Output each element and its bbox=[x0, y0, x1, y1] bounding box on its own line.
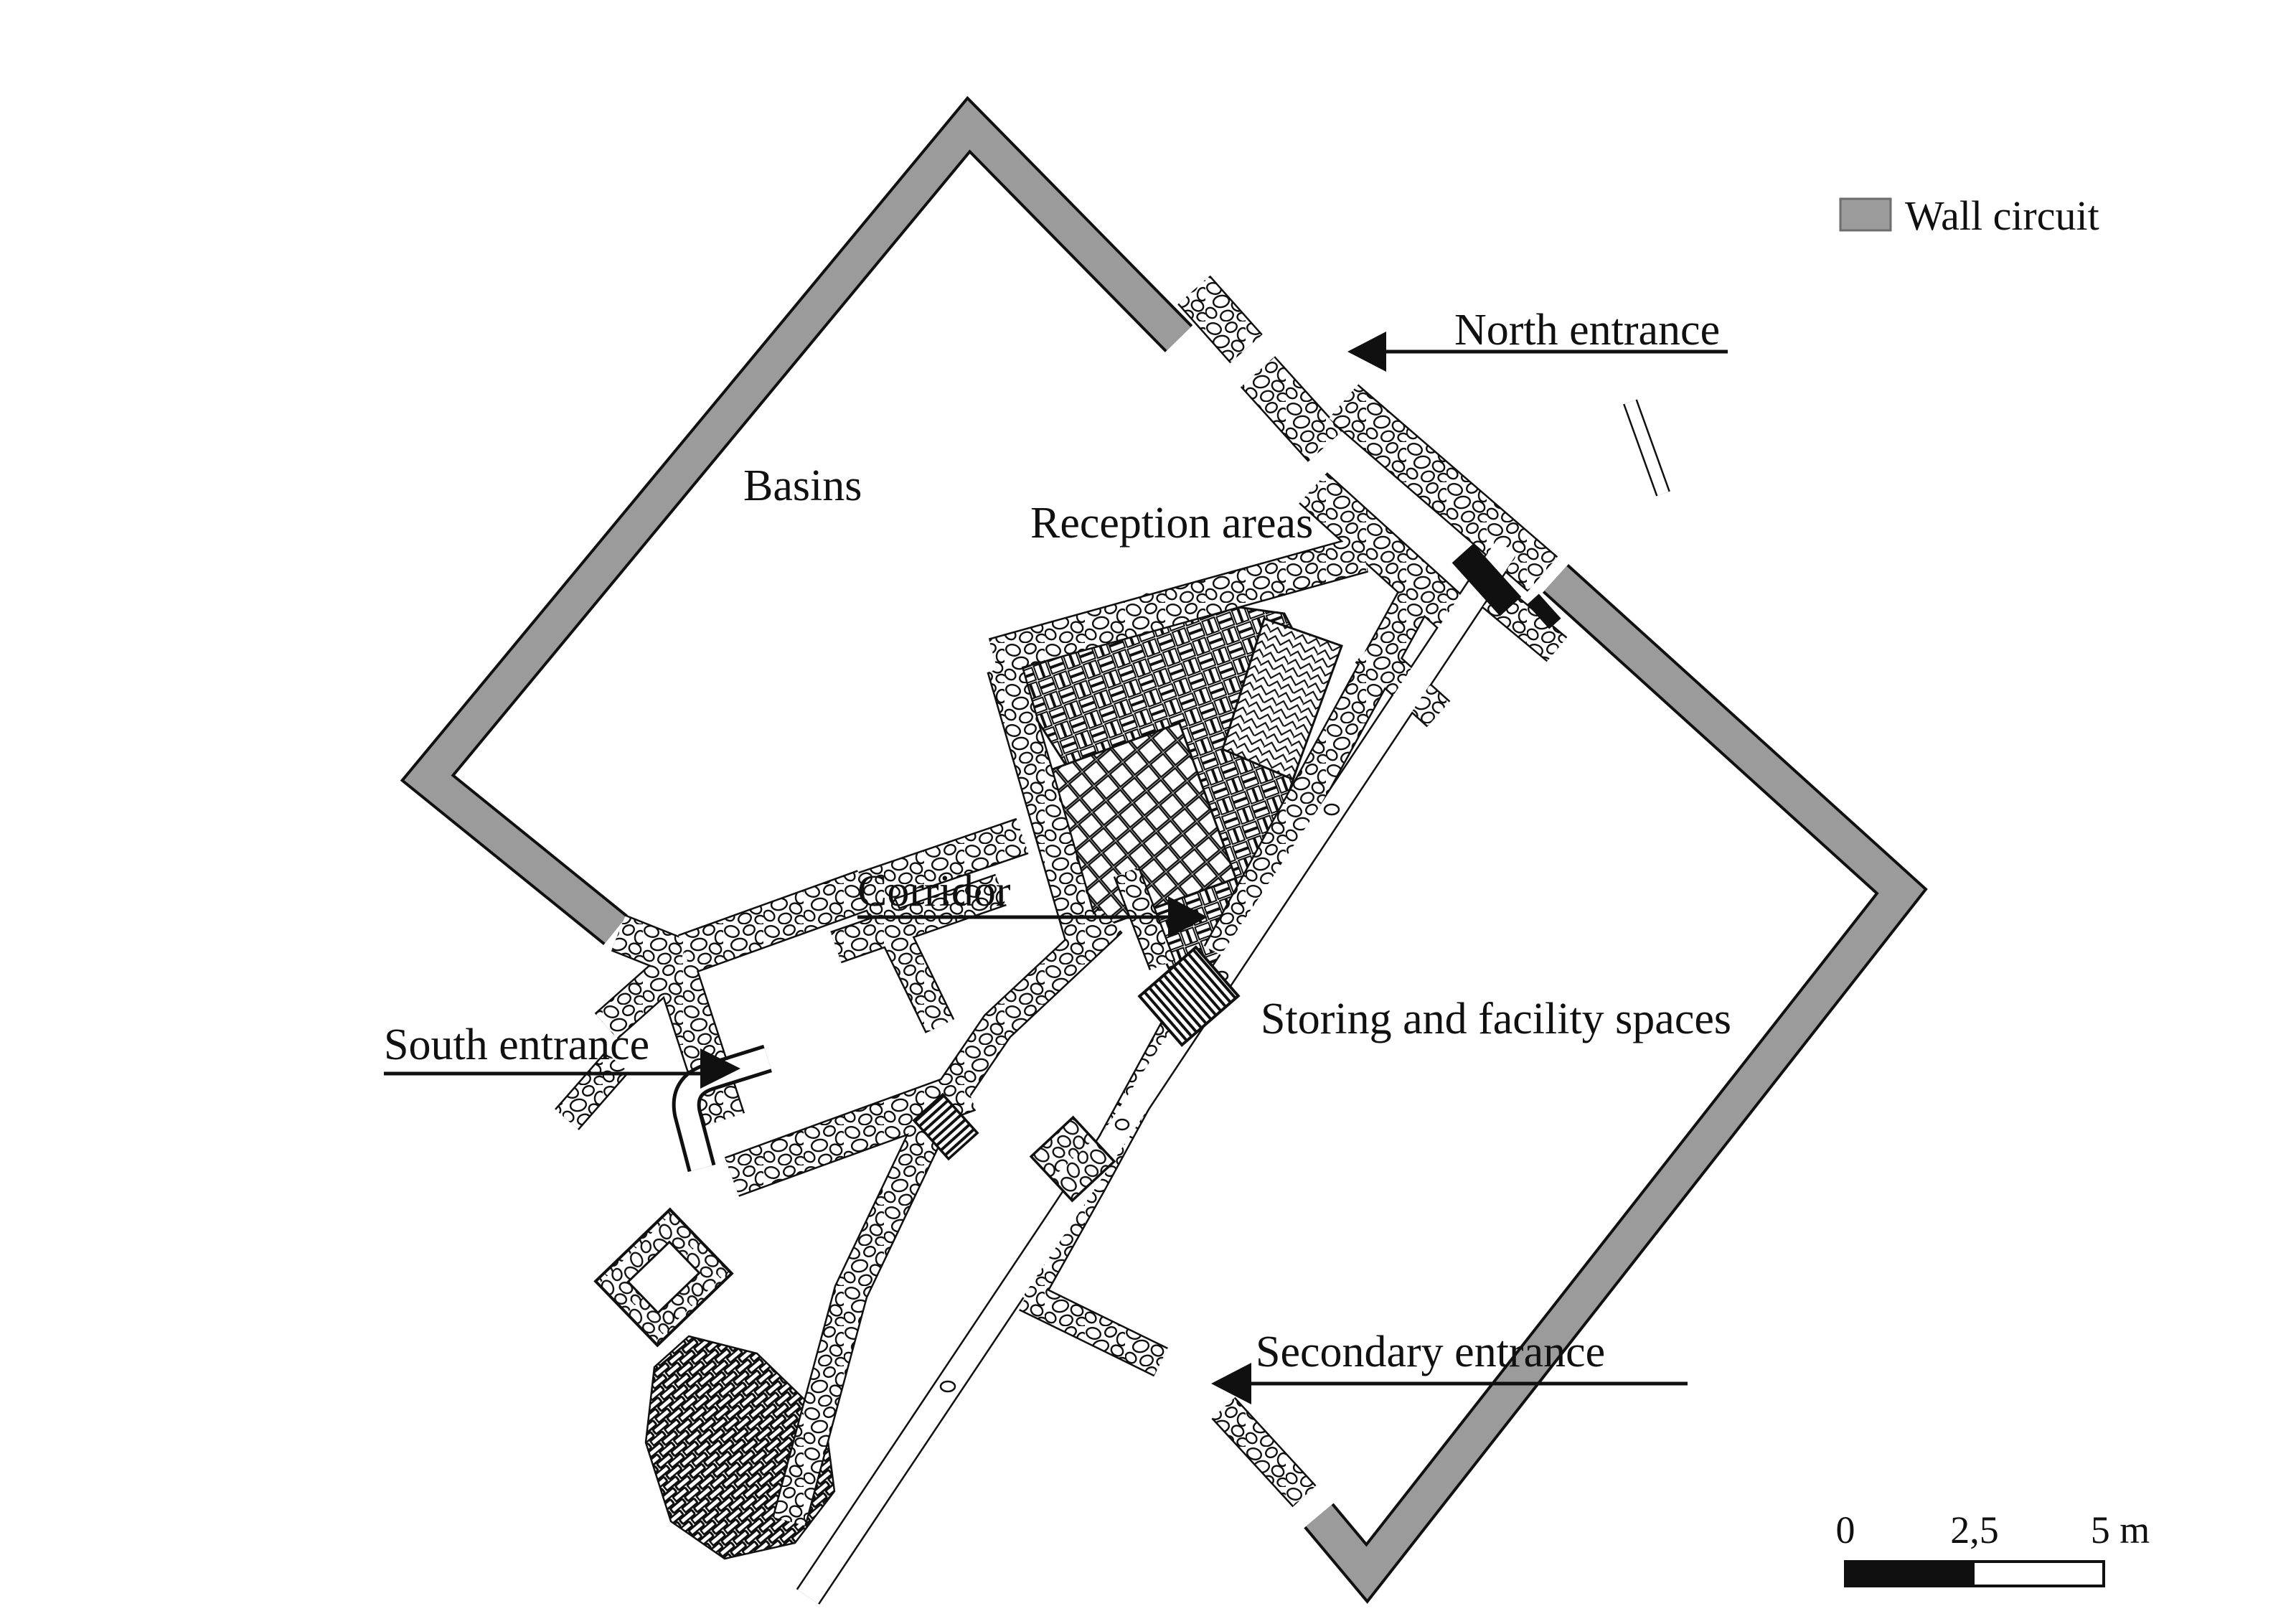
wall-circuit-swatch bbox=[1840, 199, 1891, 230]
site-plan-figure: Basins Reception areas Storing and facil… bbox=[0, 0, 2296, 1624]
scale-mid-label: 2,5 bbox=[1950, 1508, 1999, 1552]
reception-label: Reception areas bbox=[1030, 499, 1313, 548]
scale-end-label: 5 m bbox=[2091, 1508, 2150, 1552]
legend-wall-circuit-label: Wall circuit bbox=[1905, 192, 2099, 239]
secondary-entrance-label: Secondary entrance bbox=[1256, 1328, 1605, 1376]
site-plan-page: Basins Reception areas Storing and facil… bbox=[0, 0, 2296, 1624]
corridor-label: Corridor bbox=[857, 867, 1011, 916]
basins-label: Basins bbox=[743, 461, 862, 510]
north-entrance-label: North entrance bbox=[1454, 306, 1720, 355]
circuit-junction-wall bbox=[618, 933, 682, 958]
storing-label: Storing and facility spaces bbox=[1261, 995, 1731, 1043]
scale-zero-label: 0 bbox=[1836, 1508, 1855, 1552]
south-entrance-label: South entrance bbox=[384, 1020, 649, 1069]
scale-bar-black-half bbox=[1845, 1562, 1975, 1586]
